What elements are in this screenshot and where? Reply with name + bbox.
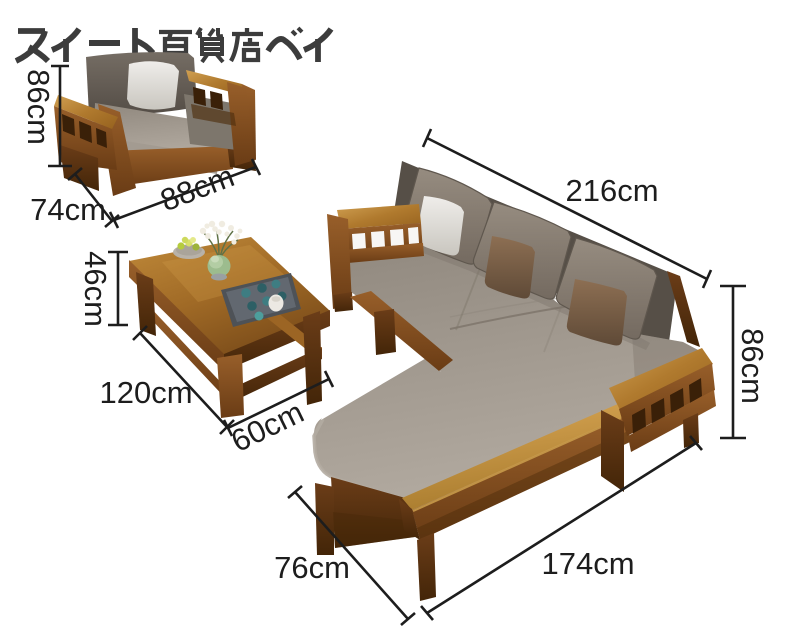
svg-text:216cm: 216cm [565, 173, 658, 208]
svg-text:76cm: 76cm [274, 550, 350, 585]
svg-text:46cm: 46cm [78, 251, 113, 327]
svg-text:86cm: 86cm [21, 69, 56, 145]
svg-text:120cm: 120cm [99, 375, 192, 410]
svg-text:174cm: 174cm [541, 546, 634, 581]
svg-text:74cm: 74cm [30, 192, 106, 227]
svg-text:86cm: 86cm [735, 328, 770, 404]
